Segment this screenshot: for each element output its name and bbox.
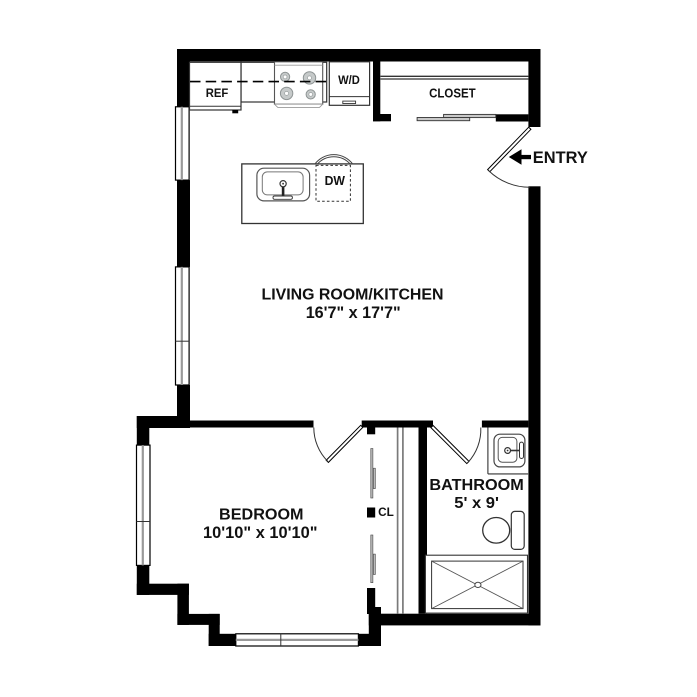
svg-text:ENTRY: ENTRY bbox=[533, 149, 588, 167]
svg-text:CLOSET: CLOSET bbox=[429, 86, 476, 101]
svg-text:BATHROOM: BATHROOM bbox=[429, 477, 524, 494]
svg-text:REF: REF bbox=[206, 86, 229, 100]
svg-text:W/D: W/D bbox=[338, 73, 360, 87]
svg-text:10'10" x 10'10": 10'10" x 10'10" bbox=[203, 523, 318, 542]
svg-text:LIVING ROOM/KITCHEN: LIVING ROOM/KITCHEN bbox=[262, 287, 444, 304]
svg-text:DW: DW bbox=[325, 173, 346, 188]
svg-text:5' x 9': 5' x 9' bbox=[454, 495, 499, 512]
svg-text:CL: CL bbox=[378, 507, 394, 519]
svg-text:BEDROOM: BEDROOM bbox=[219, 507, 304, 524]
svg-text:16'7" x 17'7": 16'7" x 17'7" bbox=[306, 304, 401, 322]
